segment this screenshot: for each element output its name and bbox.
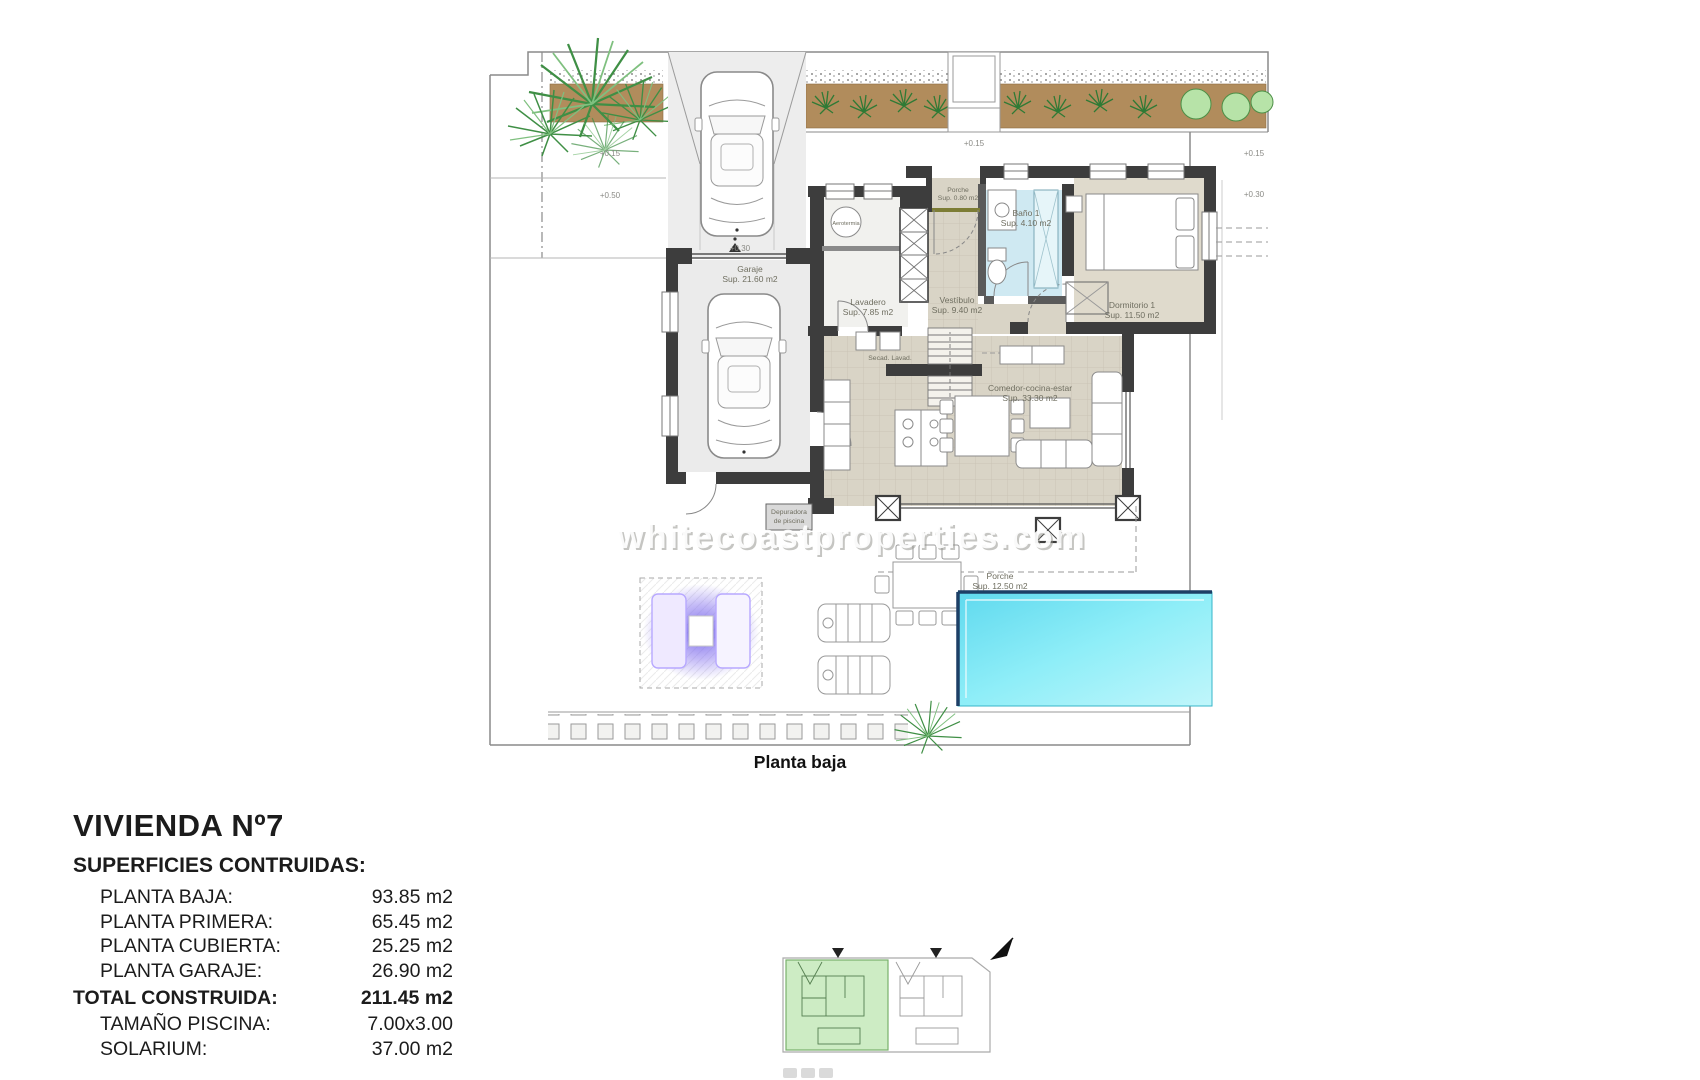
elevator-shaft (900, 208, 928, 302)
level-right-1: +0.15 (1244, 149, 1265, 158)
row-value: 26.90 m2 (372, 959, 453, 984)
summary-block: VIVIENDA Nº7 SUPERFICIES CONTRUIDAS: PLA… (73, 808, 453, 1061)
mini-site-plan (783, 948, 990, 1078)
row-value: 25.25 m2 (372, 934, 453, 959)
label-porche-entrada: Porche (947, 187, 969, 194)
mini-unit-neighbor (896, 962, 962, 1044)
label-lavadero-area: Sup. 7.85 m2 (843, 307, 894, 317)
level-right-2: +0.30 (1244, 190, 1265, 199)
kitchen-counter (824, 380, 850, 470)
sofa (1092, 372, 1122, 466)
garden-gate-arc (686, 484, 716, 514)
row-label: TAMAÑO PISCINA: (73, 1012, 271, 1037)
row-label: SOLARIUM: (73, 1037, 207, 1062)
level-front-2: +0.50 (600, 191, 621, 200)
sun-loungers (818, 604, 890, 694)
pool (958, 592, 1212, 706)
label-depuradora-1: Depuradora (771, 509, 807, 516)
mini-unit-highlighted (786, 960, 888, 1050)
summary-subtitle: SUPERFICIES CONTRUIDAS: (73, 854, 453, 878)
row-label: PLANTA CUBIERTA: (73, 934, 281, 959)
label-dormitorio1: Dormitorio 1 (1109, 300, 1156, 310)
row-value: 37.00 m2 (372, 1037, 453, 1062)
pillow (1176, 198, 1194, 230)
label-aerotermia: Aerotermia (832, 221, 860, 227)
car-driveway (695, 72, 779, 236)
entry-door-sill (932, 208, 980, 212)
row-label: PLANTA GARAJE: (73, 959, 262, 984)
page-title: VIVIENDA Nº7 (73, 808, 453, 844)
summary-row: PLANTA GARAJE: 26.90 m2 (73, 959, 453, 984)
tree-icon (1181, 89, 1211, 119)
total-value: 211.45 m2 (361, 985, 453, 1012)
neighbor-reference-lines (1216, 180, 1268, 420)
label-dormitorio1-area: Sup. 11.50 m2 (1105, 310, 1160, 320)
plan-caption: Planta baja (640, 752, 960, 773)
entry-walkway (948, 52, 1000, 132)
sofa (1016, 440, 1092, 468)
label-bano1-area: Sup. 4.10 m2 (1001, 218, 1052, 228)
row-value: 65.45 m2 (372, 910, 453, 935)
label-lavadero: Lavadero (850, 297, 886, 307)
summary-row: PLANTA BAJA: 93.85 m2 (73, 885, 453, 910)
tree-icon (1251, 91, 1273, 113)
tree-icon (1222, 93, 1250, 121)
row-label: PLANTA BAJA: (73, 885, 233, 910)
label-garaje-area: Sup. 21.60 m2 (722, 274, 778, 284)
level-front-1: +0.15 (600, 149, 621, 158)
floor-plan-sheet: Garaje Sup. 21.60 m2 Lavadero Sup. 7.85 … (0, 0, 1700, 1080)
label-porche-terraza: Porche (987, 571, 1014, 581)
dining-table (955, 396, 1009, 456)
label-vestibulo: Vestíbulo (940, 295, 975, 305)
outdoor-sofa (652, 594, 686, 668)
lounge-set (640, 578, 762, 688)
total-label: TOTAL CONSTRUIDA: (73, 985, 278, 1012)
outdoor-table (689, 616, 713, 646)
summary-row: SOLARIUM: 37.00 m2 (73, 1037, 453, 1062)
row-value: 93.85 m2 (372, 885, 453, 910)
nightstand (1066, 196, 1082, 212)
planting-strip-left (508, 38, 678, 168)
summary-total-row: TOTAL CONSTRUIDA: 211.45 m2 (73, 985, 453, 1012)
pillow (1176, 236, 1194, 268)
label-bano1: Baño 1 (1013, 208, 1040, 218)
label-secadora-lavadora: Secad. Lavad. (868, 355, 912, 362)
label-garaje: Garaje (737, 264, 763, 274)
label-porche-entrada-area: Sup. 0.80 m2 (938, 195, 979, 202)
outdoor-sofa (716, 594, 750, 668)
summary-row: TAMAÑO PISCINA: 7.00x3.00 (73, 1012, 453, 1037)
label-comedor: Comedor-cocina-estar (988, 383, 1072, 393)
row-value: 7.00x3.00 (367, 1012, 453, 1037)
label-comedor-area: Sup. 33.30 m2 (1002, 393, 1058, 403)
level-walkway: +0.15 (964, 139, 985, 148)
toilet (988, 248, 1006, 261)
watermark: whitecoastproperties.com whitecoastprope… (616, 518, 1088, 558)
label-vestibulo-area: Sup. 9.40 m2 (932, 305, 983, 315)
entry-arrow-icon (930, 948, 942, 958)
label-porche-terraza-area: Sup. 12.50 m2 (972, 581, 1028, 591)
entry-arrow-icon (832, 948, 844, 958)
north-arrow-icon (990, 938, 1013, 960)
planting-strip-right (806, 70, 1273, 132)
row-label: PLANTA PRIMERA: (73, 910, 273, 935)
front-yard-steps (490, 178, 666, 258)
level-driveway: +0.30 (730, 244, 751, 253)
svg-text:whitecoastproperties.com: whitecoastproperties.com (616, 518, 1086, 556)
car-garage (702, 294, 786, 458)
summary-row: PLANTA CUBIERTA: 25.25 m2 (73, 934, 453, 959)
summary-row: PLANTA PRIMERA: 65.45 m2 (73, 910, 453, 935)
